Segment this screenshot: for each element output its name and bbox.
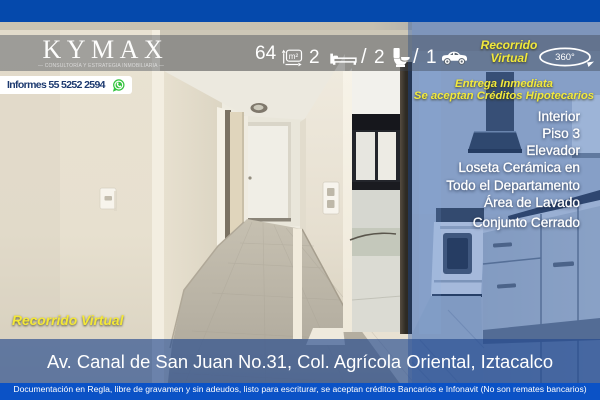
svg-text:360°: 360° — [555, 52, 575, 63]
svg-text:m²: m² — [289, 52, 299, 61]
